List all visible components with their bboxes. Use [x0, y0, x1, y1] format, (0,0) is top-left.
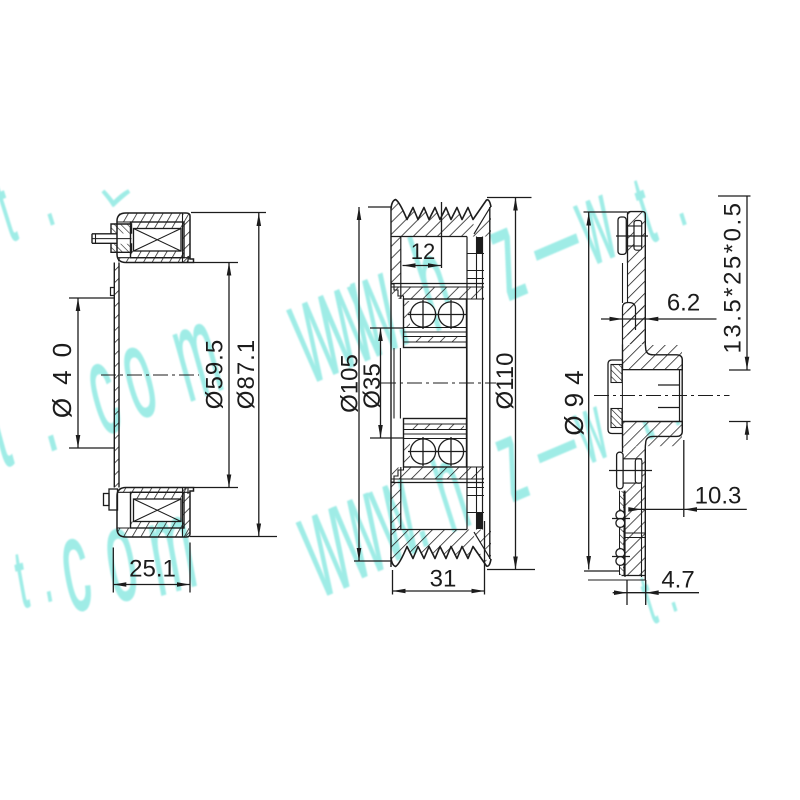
- svg-text:13.5*25*0.5: 13.5*25*0.5: [719, 201, 746, 354]
- svg-text:t: t: [0, 351, 22, 495]
- svg-text:6.2: 6.2: [667, 289, 700, 316]
- svg-text:c: c: [49, 491, 100, 642]
- svg-text:31: 31: [430, 565, 457, 592]
- svg-text:Ø94: Ø94: [559, 362, 589, 435]
- svg-text:.: .: [33, 528, 58, 620]
- svg-text:Ø35: Ø35: [359, 363, 386, 408]
- svg-text:t: t: [9, 534, 34, 626]
- svg-text:t: t: [0, 159, 26, 262]
- svg-text:Ø87.1: Ø87.1: [233, 339, 260, 409]
- svg-text:.: .: [23, 143, 64, 246]
- svg-text:Ø40: Ø40: [47, 330, 77, 418]
- svg-text:25.1: 25.1: [129, 555, 176, 582]
- svg-text:4.7: 4.7: [661, 566, 694, 593]
- svg-text:Ø59.5: Ø59.5: [201, 339, 228, 409]
- svg-text:12: 12: [411, 239, 435, 264]
- svg-text:10.3: 10.3: [695, 482, 742, 509]
- svg-text:.: .: [654, 140, 696, 246]
- svg-text:Ø110: Ø110: [492, 353, 519, 410]
